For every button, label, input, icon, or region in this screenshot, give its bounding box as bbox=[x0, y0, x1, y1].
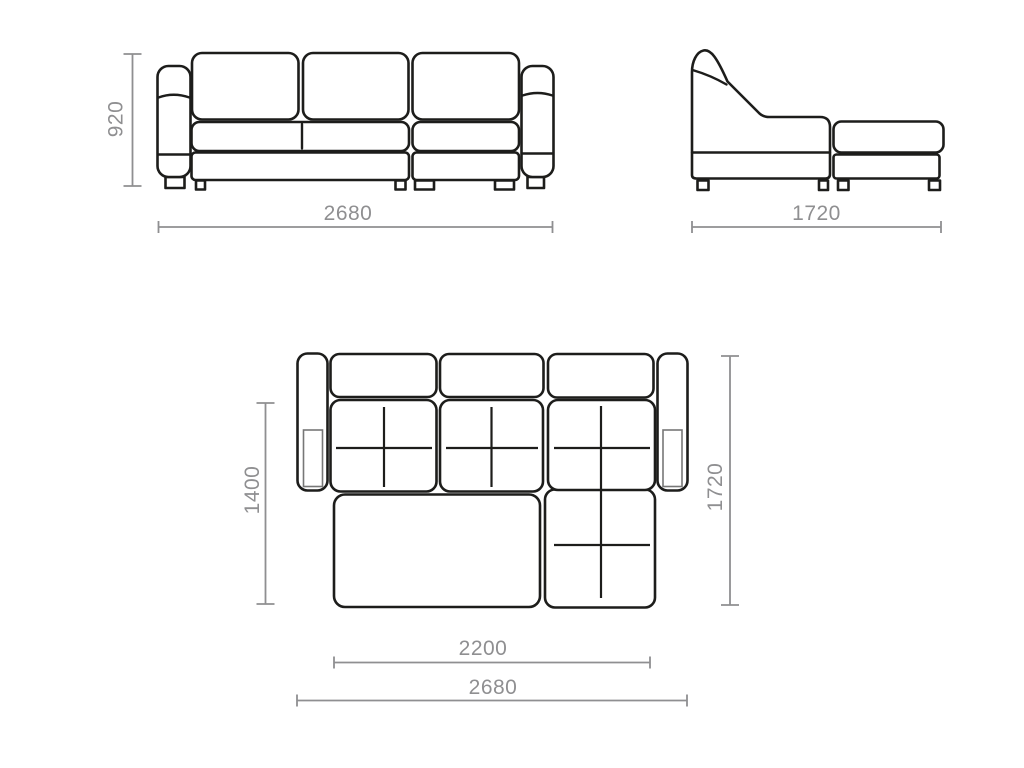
top-armrest-right bbox=[658, 354, 688, 491]
top-total-width-label: 2680 bbox=[469, 676, 518, 699]
front-back-cushion-1 bbox=[192, 53, 299, 120]
front-armrest-left bbox=[158, 66, 191, 177]
side-chaise-base bbox=[834, 155, 940, 179]
front-foot-2 bbox=[196, 181, 205, 190]
side-foot-2 bbox=[819, 181, 828, 191]
top-total-width-dimension: 2680 bbox=[297, 676, 687, 707]
top-total-depth-dimension: 1720 bbox=[704, 356, 739, 605]
side-dimensions: 1720 bbox=[692, 202, 941, 233]
top-seat-depth-dimension: 1400 bbox=[241, 403, 275, 604]
top-bed-length-label: 2200 bbox=[459, 637, 508, 660]
top-bed-length-dimension: 2200 bbox=[334, 637, 650, 669]
front-foot-3 bbox=[396, 181, 406, 190]
side-foot-4 bbox=[929, 181, 940, 191]
top-seat-depth-label: 1400 bbox=[241, 466, 264, 515]
front-foot-armrest-right bbox=[528, 177, 545, 188]
front-height-label: 920 bbox=[105, 101, 128, 138]
front-seat-cushion-right bbox=[413, 122, 520, 151]
sofa-dimension-drawing: 920 2680 1720 bbox=[0, 0, 1024, 768]
front-height-dimension: 920 bbox=[105, 54, 142, 186]
front-back-cushion-2 bbox=[303, 53, 409, 120]
front-base-left bbox=[192, 153, 410, 181]
front-width-dimension: 2680 bbox=[159, 202, 553, 233]
front-width-label: 2680 bbox=[324, 202, 373, 225]
side-depth-dimension: 1720 bbox=[692, 202, 941, 233]
top-back-cushion-3 bbox=[548, 354, 654, 398]
front-base-right bbox=[413, 153, 520, 181]
front-back-cushion-3 bbox=[413, 53, 520, 120]
side-foot-3 bbox=[838, 181, 849, 191]
top-bed-section bbox=[334, 495, 540, 608]
side-view bbox=[692, 50, 944, 190]
front-view bbox=[158, 53, 554, 190]
side-chaise-cushion bbox=[834, 122, 944, 153]
top-view bbox=[298, 354, 688, 608]
front-foot-5 bbox=[495, 181, 514, 190]
top-back-cushion-1 bbox=[331, 354, 437, 397]
top-back-cushion-2 bbox=[440, 354, 544, 397]
front-armrest-right bbox=[522, 66, 554, 177]
side-foot-1 bbox=[698, 181, 709, 191]
drawing-canvas: 920 2680 1720 bbox=[0, 0, 1024, 768]
front-seat-cushion-left bbox=[192, 122, 410, 151]
front-foot-armrest-left bbox=[166, 177, 185, 188]
side-body-outline bbox=[692, 50, 830, 178]
front-foot-4 bbox=[415, 181, 434, 190]
side-feet bbox=[698, 181, 941, 191]
side-depth-label: 1720 bbox=[792, 202, 841, 225]
top-total-depth-label: 1720 bbox=[704, 463, 727, 512]
